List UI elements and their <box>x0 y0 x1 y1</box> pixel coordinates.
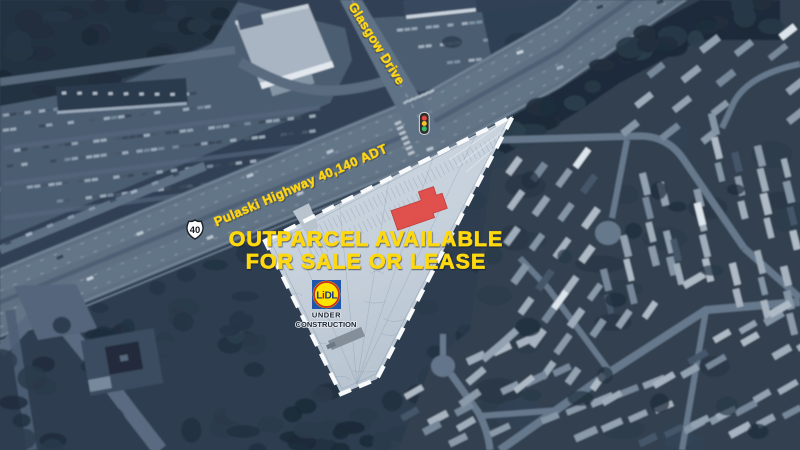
svg-text:LiDL: LiDL <box>316 290 337 301</box>
svg-text:OUTPARCEL AVAILABLE: OUTPARCEL AVAILABLE <box>229 227 504 251</box>
svg-text:CONSTRUCTION: CONSTRUCTION <box>295 320 356 329</box>
svg-text:40: 40 <box>190 224 200 235</box>
svg-text:UNDER: UNDER <box>312 310 341 319</box>
svg-text:FOR SALE OR LEASE: FOR SALE OR LEASE <box>246 250 486 274</box>
